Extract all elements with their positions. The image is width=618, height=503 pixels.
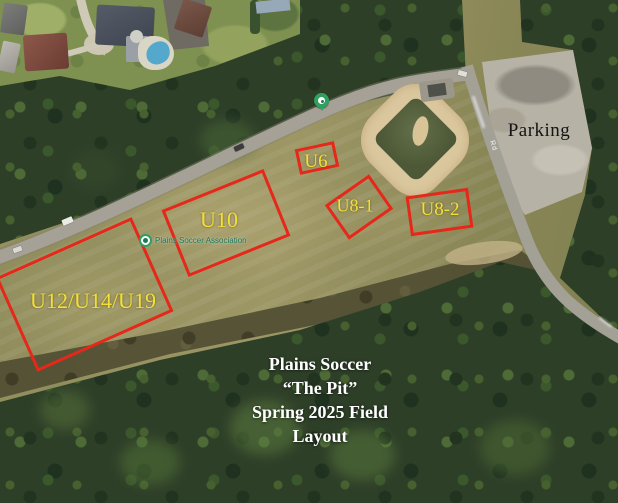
field-label-u6: U6 bbox=[304, 151, 327, 173]
field-label-u8-1: U8-1 bbox=[337, 196, 374, 217]
title-line-1: Plains Soccer bbox=[252, 352, 388, 376]
house-roof-1 bbox=[0, 2, 28, 35]
field-label-u10: U10 bbox=[200, 207, 238, 233]
backstop bbox=[427, 83, 446, 97]
aerial-field-layout-map: U12/U14/U19 U10 U6 U8-1 U8-2 Parking Pla… bbox=[0, 0, 618, 503]
field-label-u8-2: U8-2 bbox=[420, 199, 459, 221]
title-line-3: Spring 2025 Field bbox=[252, 400, 388, 424]
title-line-4: Layout bbox=[252, 424, 388, 448]
parking-label: Parking bbox=[508, 120, 571, 142]
map-pin-tail bbox=[319, 106, 325, 111]
title-overlay: Plains Soccer “The Pit” Spring 2025 Fiel… bbox=[252, 352, 388, 448]
poi-label: Plains Soccer Association bbox=[155, 236, 247, 245]
poi-dot-icon bbox=[139, 234, 152, 247]
side-road bbox=[467, 66, 618, 340]
field-label-u12-u14-u19: U12/U14/U19 bbox=[30, 288, 156, 314]
house-roof-red bbox=[23, 33, 69, 72]
title-line-2: “The Pit” bbox=[252, 376, 388, 400]
poi-marker: Plains Soccer Association bbox=[139, 234, 247, 247]
